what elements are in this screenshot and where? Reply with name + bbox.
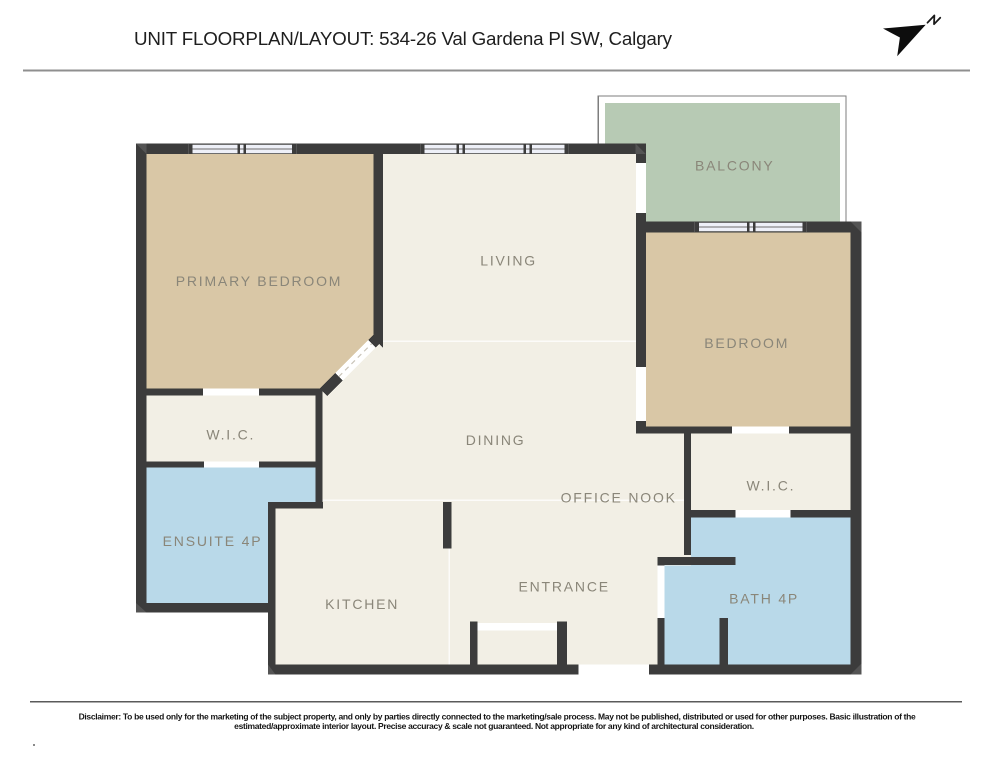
svg-text:UNIT FLOORPLAN/LAYOUT: 534-26: UNIT FLOORPLAN/LAYOUT: 534-26 Val Garden… (134, 28, 673, 49)
svg-text:BATH 4P: BATH 4P (729, 590, 799, 606)
svg-text:Disclaimer: To be used only fo: Disclaimer: To be used only for the mark… (79, 712, 916, 722)
svg-text:ENSUITE 4P: ENSUITE 4P (163, 533, 263, 549)
svg-text:PRIMARY BEDROOM: PRIMARY BEDROOM (176, 273, 343, 289)
svg-text:LIVING: LIVING (480, 253, 537, 269)
svg-text:ENTRANCE: ENTRANCE (518, 579, 609, 595)
svg-text:KITCHEN: KITCHEN (325, 596, 399, 612)
svg-text:DINING: DINING (466, 432, 526, 448)
svg-text:W.I.C.: W.I.C. (206, 427, 255, 443)
svg-text:W.I.C.: W.I.C. (746, 477, 795, 493)
svg-text:estimated/approximate interior: estimated/approximate interior layout. P… (234, 721, 754, 731)
svg-text:BEDROOM: BEDROOM (704, 335, 789, 351)
svg-text:OFFICE NOOK: OFFICE NOOK (561, 490, 677, 506)
svg-text:BALCONY: BALCONY (695, 157, 775, 173)
